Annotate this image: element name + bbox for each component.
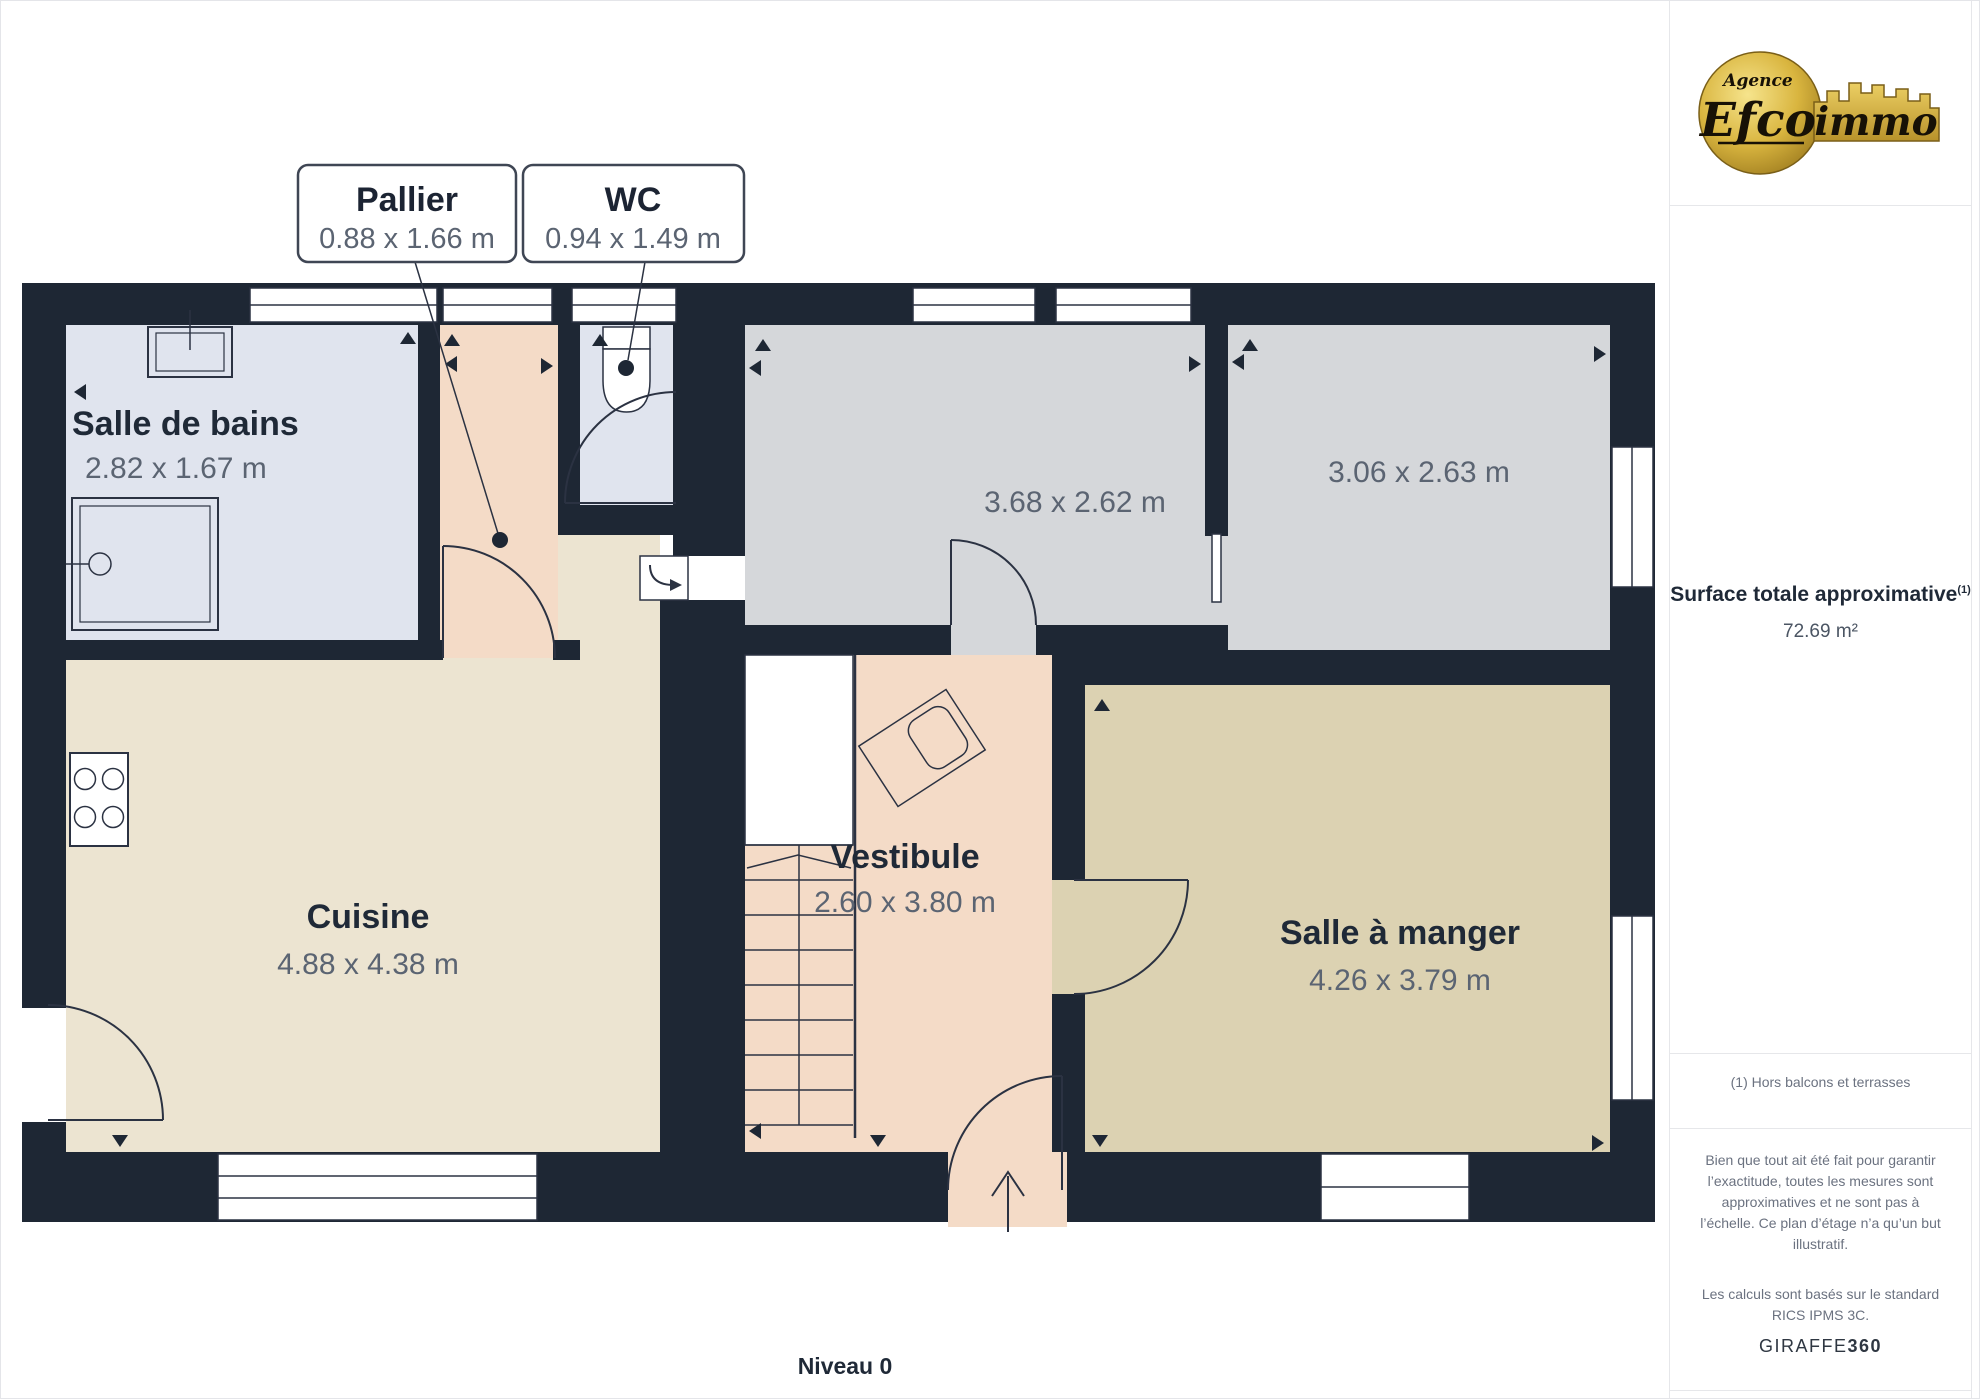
passage-arrow-icon: [640, 556, 688, 600]
label-vestibule: Vestibule: [830, 838, 979, 876]
callout-wc-title: WC: [605, 181, 662, 219]
dims-salle-de-bains: 2.82 x 1.67 m: [85, 452, 267, 485]
giraffe360-brand: GIRAFFE360: [1670, 1336, 1971, 1357]
label-salle-de-bains: Salle de bains: [72, 405, 299, 443]
divider: [1670, 205, 1971, 206]
standard-note: Les calculs sont basés sur le standard R…: [1670, 1284, 1971, 1326]
standard-note-text: Les calculs sont basés sur le standard R…: [1694, 1284, 1948, 1326]
window: [443, 288, 552, 322]
surface-title-sup: (1): [1957, 584, 1970, 596]
callout-wc-dims: 0.94 x 1.49 m: [545, 223, 721, 255]
agency-logo: Agence Efco immo: [1696, 44, 1946, 182]
stove-icon: [70, 753, 128, 846]
callout-pallier: Pallier 0.88 x 1.66 m: [298, 165, 516, 262]
window: [250, 288, 437, 322]
window: [913, 288, 1035, 322]
sidebar: Agence Efco immo Surface totale approxim…: [1669, 0, 1972, 1399]
disclaimer: Bien que tout ait été fait pour garantir…: [1670, 1150, 1971, 1255]
callout-pallier-dims: 0.88 x 1.66 m: [319, 223, 495, 255]
giraffe360-brand-name: GIRAFFE: [1759, 1336, 1848, 1356]
toilet-icon: [603, 327, 650, 412]
logo-text-agence: Agence: [1721, 71, 1793, 91]
dims-cuisine: 4.88 x 4.38 m: [277, 948, 459, 981]
dims-vestibule: 2.60 x 3.80 m: [814, 886, 996, 919]
pocket-door: [1212, 534, 1221, 602]
divider: [1670, 1053, 1971, 1054]
floor-room-368: [745, 325, 1205, 625]
window: [572, 288, 676, 322]
dims-room-368: 3.68 x 2.62 m: [984, 486, 1166, 519]
callout-wc: WC 0.94 x 1.49 m: [523, 165, 744, 262]
surface-title: Surface totale approximative(1): [1670, 583, 1971, 607]
divider: [1670, 1390, 1971, 1391]
footnote: (1) Hors balcons et terrasses: [1670, 1074, 1971, 1090]
surface-title-text: Surface totale approximative: [1670, 583, 1957, 606]
logo-text-immo: immo: [1814, 99, 1937, 145]
window: [1321, 1154, 1469, 1220]
window: [1612, 916, 1653, 1100]
dims-room-306: 3.06 x 2.63 m: [1328, 456, 1510, 489]
dims-salle-a-manger: 4.26 x 3.79 m: [1309, 964, 1491, 997]
callout-pallier-title: Pallier: [356, 181, 458, 219]
divider: [1670, 1128, 1971, 1129]
level-label: Niveau 0: [798, 1353, 893, 1379]
logo-text-efco: Efco: [1698, 93, 1816, 148]
floor-pallier: [440, 325, 558, 640]
window: [218, 1154, 537, 1220]
giraffe360-brand-suffix: 360: [1847, 1336, 1882, 1356]
disclaimer-text: Bien que tout ait été fait pour garantir…: [1694, 1150, 1948, 1255]
surface-value: 72.69 m²: [1670, 621, 1971, 643]
label-salle-a-manger: Salle à manger: [1280, 914, 1520, 952]
label-cuisine: Cuisine: [307, 898, 430, 936]
window: [1612, 447, 1653, 587]
window: [1056, 288, 1191, 322]
surface-block: Surface totale approximative(1) 72.69 m²: [1670, 583, 1971, 643]
